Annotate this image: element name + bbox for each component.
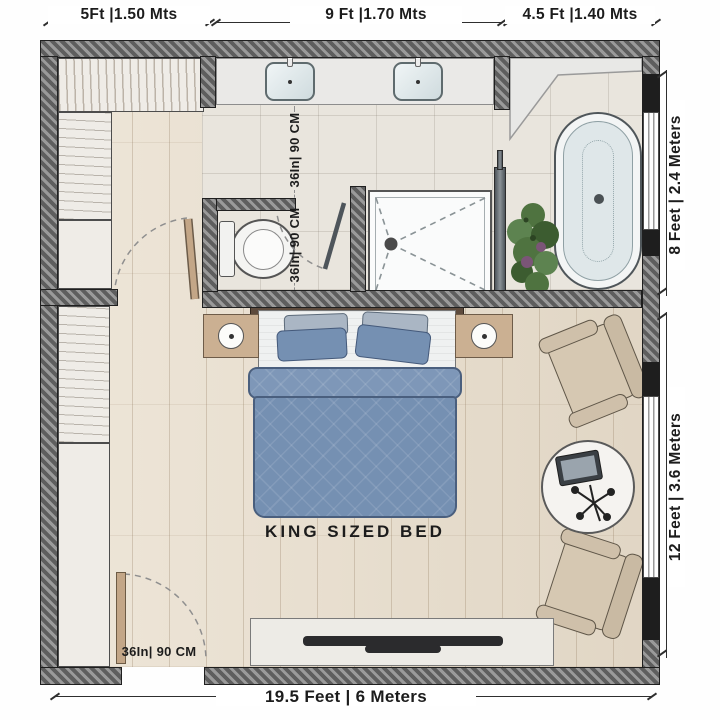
wall-top (40, 40, 660, 58)
dim-top-left-label: 5Ft |1.50 Mts (48, 6, 210, 24)
vanity-counter (216, 58, 494, 105)
duvet (253, 396, 457, 518)
bathtub-drain (594, 194, 604, 204)
wall-bottom-left (40, 667, 122, 685)
dim-right-lower-label: 12 Feet | 3.6 Meters (667, 387, 685, 587)
pillow-front-left (276, 327, 348, 362)
walk-in-closet-hanging-rail (58, 58, 204, 112)
dim-wc-width-label: 36In| 90 CM (287, 205, 303, 285)
freestanding-bathtub (554, 112, 642, 290)
tv-stand (365, 645, 441, 653)
dim-passage-label: 36In| 90 CM (287, 110, 303, 190)
wall-wc-top (216, 198, 296, 211)
dim-top-middle-label: 9 Ft |1.70 Mts (290, 6, 462, 24)
sink-right (393, 62, 443, 101)
wall-vanity-stub (494, 56, 510, 110)
wall-wc-left (202, 198, 218, 292)
window-bedroom (643, 396, 659, 578)
shower-glass-panel (494, 167, 506, 292)
window-bathroom (643, 112, 659, 230)
table-lamp-right (471, 323, 497, 349)
floor-plan: 5Ft |1.50 Mts 9 Ft |1.70 Mts 4.5 Ft |1.4… (0, 0, 720, 720)
table-lamp-left (218, 323, 244, 349)
wall-closet-stub (200, 56, 216, 108)
wall-bottom-right (204, 667, 660, 685)
bedroom-wardrobe (58, 306, 110, 443)
closet-shelf-unit (58, 112, 112, 220)
wall-mid-left-stub (40, 289, 118, 306)
dim-top-right-label: 4.5 Ft |1.40 Mts (505, 6, 655, 24)
duvet-fold (248, 367, 462, 399)
wall-shower-left (350, 186, 366, 292)
dim-bottom-label: 19.5 Feet | 6 Meters (216, 688, 476, 706)
toilet-tank (219, 221, 235, 277)
shower-glass-support (497, 150, 503, 170)
sink-left (265, 62, 315, 101)
window-jamb (643, 362, 659, 396)
bedroom-cabinet (58, 443, 110, 667)
window-jamb (643, 578, 659, 640)
window-jamb (643, 74, 659, 112)
bed-area-label: KING SIZED BED (250, 522, 460, 542)
walk-in-shower-tray (368, 190, 492, 298)
toilet-seat (243, 229, 284, 270)
closet-cabinet (58, 220, 112, 289)
dim-entry-door-label: 36In| 90 CM (118, 644, 200, 660)
window-jamb (643, 230, 659, 256)
wall-left (40, 56, 58, 685)
wall-bath-bedroom (202, 290, 642, 308)
dim-right-upper-label: 8 Feet | 2.4 Meters (667, 100, 685, 270)
